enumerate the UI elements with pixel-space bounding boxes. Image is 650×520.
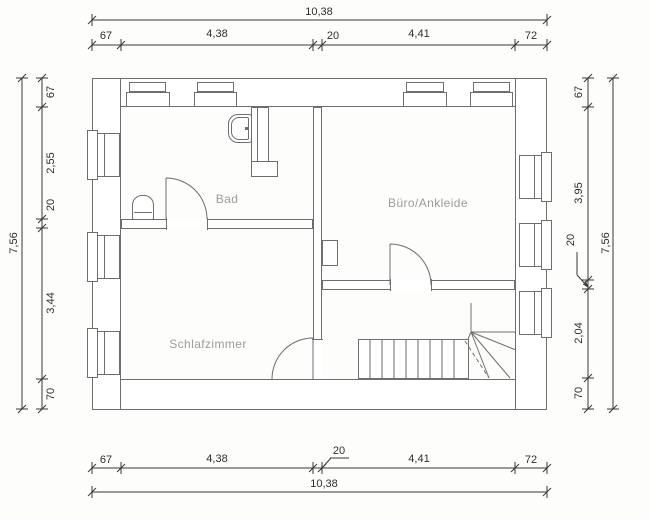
- chimney-pier-hall: [322, 240, 338, 266]
- window-frame-left-1: [104, 133, 105, 177]
- dim-left-seg-255: 2,55: [45, 152, 57, 173]
- chimney-block-2-top: [197, 82, 234, 92]
- dim-right-seg-20: 20: [565, 234, 577, 246]
- door-arc-schlafzimmer: [272, 338, 313, 379]
- window-frame-right-2: [534, 223, 535, 267]
- dim-leader-right-20: [577, 252, 588, 287]
- door-opening-bad: [166, 218, 208, 230]
- washbasin-drain: [245, 127, 248, 130]
- toilet-seat-line: [134, 212, 152, 213]
- chimney-block-2-base: [194, 92, 237, 107]
- dim-left-seg-70: 70: [45, 388, 57, 400]
- dim-right-seg-204: 2,04: [573, 322, 585, 343]
- dim-bottom-seg-441: 4,41: [408, 453, 429, 465]
- staircase-flight: [358, 339, 469, 379]
- dim-right-overall: 7,56: [600, 232, 612, 253]
- room-label-schlafzimmer: Schlafzimmer: [169, 337, 246, 351]
- dim-leader-bottom-20: [322, 458, 349, 468]
- dim-line-top-segments: [88, 39, 551, 51]
- window-right-1: [519, 155, 542, 199]
- stair-winders: [468, 303, 516, 378]
- interior-wall-middle: [313, 107, 322, 340]
- dim-bottom-seg-67: 67: [100, 454, 112, 466]
- chimney-block-1-base: [126, 92, 170, 107]
- room-label-bad: Bad: [216, 192, 239, 206]
- room-label-buero-ankleide: Büro/Ankleide: [388, 196, 468, 210]
- door-opening-buero: [390, 279, 432, 291]
- chimney-block-4-top: [473, 82, 510, 92]
- dim-left-seg-20: 20: [45, 199, 57, 211]
- dim-top-seg-72: 72: [525, 30, 537, 42]
- chimney-block-4-base: [470, 92, 513, 107]
- door-opening-schlafzimmer: [312, 339, 323, 380]
- door-arc-bad: [166, 178, 207, 219]
- chimney-block-3-top: [406, 82, 444, 92]
- dim-bottom-seg-72: 72: [525, 454, 537, 466]
- window-frame-right-1: [534, 155, 535, 199]
- chimney-block-3-base: [403, 92, 447, 107]
- window-right-3: [519, 291, 542, 335]
- window-frame-left-3: [104, 331, 105, 375]
- window-frame-right-3: [534, 291, 535, 335]
- dim-line-left-segments: [36, 74, 48, 413]
- dim-line-right-segments: [582, 74, 594, 413]
- dim-top-seg-67: 67: [100, 30, 112, 42]
- dim-bottom-seg-438: 4,38: [206, 453, 227, 465]
- dim-right-seg-70: 70: [573, 387, 585, 399]
- floor-plan-drawing: Bad Büro/Ankleide Schlafzimmer 10,38 67 …: [0, 0, 650, 520]
- dim-top-seg-438: 4,38: [206, 28, 227, 40]
- chimney-block-1-top: [129, 82, 166, 92]
- dim-top-seg-20: 20: [327, 30, 339, 42]
- toilet: [132, 195, 154, 220]
- dim-top-overall: 10,38: [305, 6, 333, 18]
- dim-top-seg-441: 4,41: [408, 28, 429, 40]
- window-frame-left-2: [104, 235, 105, 279]
- window-sill-right-1: [541, 152, 552, 202]
- dim-right-seg-67: 67: [573, 86, 585, 98]
- window-left-3: [97, 331, 120, 375]
- window-right-2: [519, 223, 542, 267]
- window-sill-right-2: [541, 220, 552, 270]
- interior-wall-bad-schlafzimmer: [121, 219, 313, 229]
- window-left-1: [97, 133, 120, 177]
- dim-bottom-seg-20: 20: [333, 445, 345, 457]
- bath-partition-foot: [251, 161, 278, 177]
- dim-left-seg-344: 3,44: [45, 292, 57, 313]
- dim-bottom-overall: 10,38: [310, 478, 338, 490]
- dim-right-seg-395: 3,95: [573, 182, 585, 203]
- window-sill-right-3: [541, 288, 552, 338]
- dim-left-seg-67: 67: [45, 86, 57, 98]
- dim-left-overall: 7,56: [8, 232, 20, 253]
- outer-wall-bottom: [92, 379, 547, 410]
- dim-line-bottom-segments: [88, 462, 551, 474]
- window-left-2: [97, 235, 120, 279]
